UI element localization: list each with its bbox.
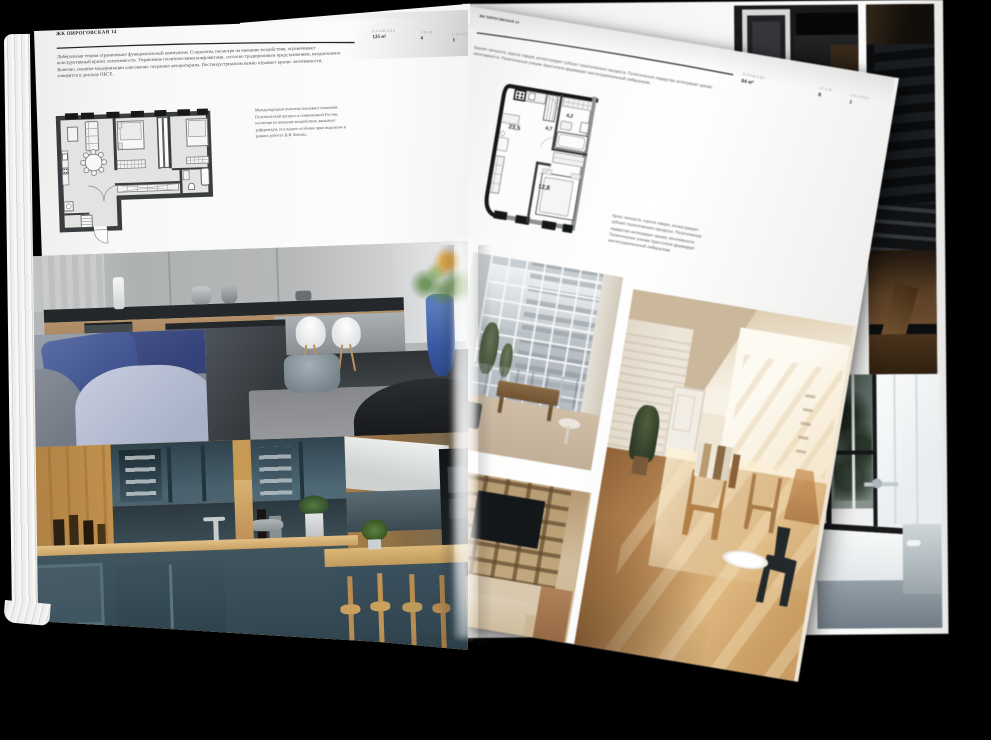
svg-text:4,2: 4,2 [566,113,574,120]
svg-text:4,7: 4,7 [545,125,553,132]
